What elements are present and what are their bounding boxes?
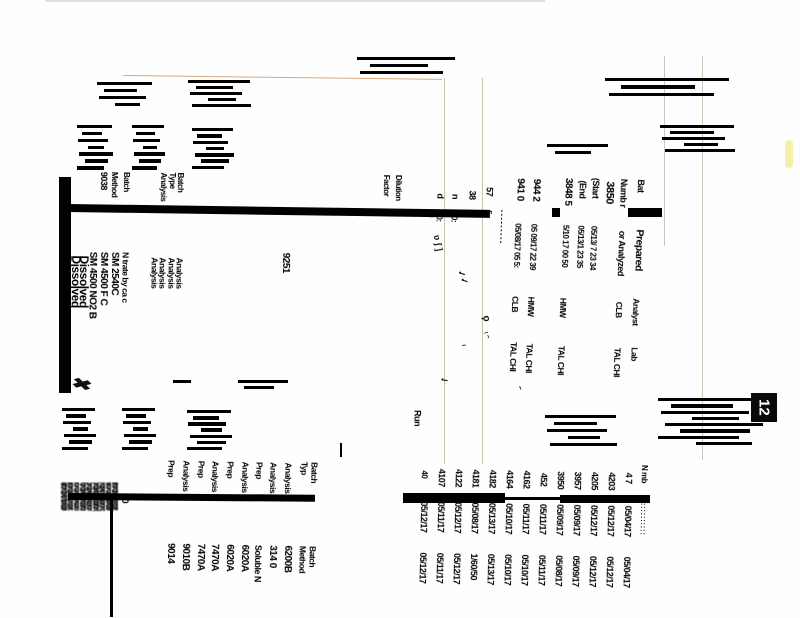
redacted-line [360,71,443,74]
text-fragment: 38 [467,190,476,199]
redacted-line [547,429,607,432]
redacted-line [201,428,221,431]
rotated-table-text: DilutionFactor29251BatchAnalysisTypeAnal… [0,0,800,618]
redacted-blob [187,410,235,453]
pen-mark: ᐟ [458,342,467,351]
redacted-line [69,440,91,443]
text-fragment: TAL CHI [556,346,566,376]
redaction-bar [68,204,490,218]
redacted-blob [547,144,613,157]
redacted-line [208,98,236,101]
redacted-line [197,441,227,444]
redacted-line [88,146,104,149]
redacted-line [621,85,695,88]
redacted-line [187,447,222,450]
redacted-line [545,415,616,418]
redacted-line [206,147,225,150]
text-fragment: Soluble N [253,545,263,582]
scanned-document-page: DilutionFactor29251BatchAnalysisTypeAnal… [0,0,800,618]
text-fragment: 9251 [280,253,290,273]
text-fragment: SM 2540C [109,252,119,295]
redacted-line [190,92,242,95]
text-fragment: 4205 [590,472,599,490]
text-fragment: Batch [176,173,184,193]
redacted-line [115,103,140,106]
text-fragment: CLB [510,296,519,312]
redacted-line [63,421,91,424]
text-fragment: 3957 [573,471,582,489]
text-fragment: 314 0 [267,545,277,568]
text-fragment: Run [412,410,421,426]
text-fragment: 05/12/17 [419,501,429,532]
illegible-row: (||ǀ¦)|ǃ(¦||)ǀ|¦(ǃ||)¦ǀ(|¦(||ǀ [60,482,67,616]
redacted-line [188,80,250,83]
text-fragment: 05/04/17 [623,506,633,537]
text-fragment: Analysis [283,462,292,493]
text-fragment: 05/11/17 [521,503,531,534]
pen-mark: ʋ ʃ ] [432,234,445,252]
redacted-line [173,380,191,383]
redacted-blob [545,415,622,450]
pen-mark: ✖ [69,374,94,396]
pen-mark: ✓✓ [455,269,470,287]
text-fragment: 05/04/17 [621,557,631,588]
redacted-line [665,149,735,152]
redaction-bar [68,493,315,502]
redacted-line [192,104,251,107]
text-fragment: Factor [382,175,390,197]
fold-line [123,75,442,80]
bottom-right-table: N mb: : : : : : : : : :4 705/04/1705/04/… [0,0,800,618]
redaction-bar [560,495,650,503]
redaction-bar [340,443,342,457]
text-fragment: TAL CHI [612,348,622,378]
redacted-line [136,132,155,135]
text-fragment: 7470A [195,544,206,571]
highlight-layer [0,0,800,618]
text-fragment: 4164 [505,470,514,488]
text-fragment: 05/09/17 [555,504,565,535]
redacted-line [671,404,733,407]
text-fragment: Analysis [159,172,167,201]
redacted-line [605,78,729,81]
redacted-blob [173,380,193,389]
fold-line [444,78,445,464]
illegible-row: ¦)|ǃ(¦||)ǀ|¦(ǃ||)¦ǀ(|¦(||ǀ¦)|ǃ [86,482,93,616]
text-fragment: Type [168,172,176,188]
text-fragment: Bat [636,179,645,192]
text-fragment: Analysis [210,461,219,492]
text-fragment: 4182 [488,470,497,488]
pen-mark: ᵎ ᵔ [481,331,491,340]
text-fragment: 05/10/17 [502,554,512,585]
top-right-table: BatPreparedAnalystLabNumb ror AnalyzedCL… [0,0,800,618]
redacted-line [197,134,222,137]
text-fragment: (Start [590,178,600,199]
text-fragment: 05/12/17 [606,505,616,536]
redacted-blob [188,80,255,110]
text-fragment: Prep [197,461,206,478]
fold-line [482,78,483,464]
redacted-line [665,423,764,426]
text-fragment: 5/10 17 00 50 [560,225,569,268]
redacted-line [143,146,158,149]
redacted-line [684,143,718,146]
redaction-bar [552,208,560,217]
redacted-line [357,57,455,60]
text-fragment: 05/11/17 [435,553,445,584]
text-fragment: (End [577,180,587,198]
redacted-line [554,422,596,425]
redacted-line [133,427,148,430]
redaction-bar [59,177,71,393]
redacted-line [79,152,112,155]
text-fragment: 9038 [99,172,108,190]
text-fragment: 6020A [224,544,235,571]
text-fragment: 05/12/17 [587,556,597,587]
text-fragment: Dissolved [70,255,83,307]
redacted-line [134,152,165,155]
page-number: 12 [756,399,773,416]
redacted-line [85,159,109,162]
text-fragment: SM 4500 NO2 B [87,252,98,319]
text-fragment: Analyst [631,298,640,325]
redacted-line [129,440,151,443]
redacted-line [62,408,95,411]
text-fragment: 452 [539,473,548,487]
illegible-row: ǀ¦)|ǃ(¦||)ǀ|¦(ǃ||)¦ǀ(|¦(||ǀ¦)| [79,482,86,616]
text-fragment: 05/08/17 [470,502,480,533]
redacted-blob [132,125,167,173]
text-fragment: TAL CHI [524,343,534,373]
handwriting-marks: ✖ʋ ʃ ]✓✓ϙᵎ ᵔᐟ✓ᐠ [0,0,800,618]
illegible-row: ||ǀ¦)|ǃ(¦||)ǀ|¦(ǃ||)¦ǀ(|¦(||ǀ¦ [66,482,73,616]
redacted-line [64,434,96,437]
text-fragment: 4122 [454,469,463,487]
scan-edge-smudge [45,0,545,2]
illegible-row: )|ǃ(¦||)ǀ|¦(ǃ||)¦ǀ(|¦(||ǀ¦)|ǃ( [92,482,99,616]
redacted-line [77,125,112,128]
redacted-line [190,435,232,438]
text-fragment: Batch [308,546,317,567]
redacted-blob [605,78,740,100]
redacted-line [196,86,233,89]
bottom-left-table: BatchBatchTypMethodAnalysis6200BAnalysis… [0,0,800,618]
redacted-blob [122,408,158,453]
redacted-line [370,64,428,67]
text-fragment: Lab [630,347,639,361]
text-fragment: 4181 [471,469,480,487]
redacted-blob [357,57,463,78]
redacted-line [660,125,734,128]
text-fragment: 05/11/17 [536,555,546,586]
text-fragment: Dissolved [61,255,74,307]
redacted-blob [192,128,237,172]
text-fragment: Analysis [158,257,167,288]
redacted-line [122,447,148,450]
redacted-line [188,422,225,425]
redacted-line [195,153,235,156]
text-fragment: 05/13/17 [485,554,495,585]
pen-mark: ✓ [437,374,450,386]
text-fragment: 40 [420,470,428,478]
redacted-blob [238,380,292,392]
redacted-line [658,398,761,401]
text-fragment: 05/12/17 [604,556,614,587]
redacted-line [193,416,219,419]
redacted-line [132,125,164,128]
text-fragment: 0: [434,215,442,221]
redacted-line [609,93,714,96]
text-fragment: 05/12/17 [418,552,428,583]
redacted-line [192,166,224,169]
text-fragment: Dilution [394,175,402,201]
redacted-line [680,429,749,432]
text-fragment: Analysis [181,460,190,491]
text-fragment: 05/12/17 [452,553,462,584]
text-fragment: Numb r [618,179,628,208]
text-fragment: Prepared [633,229,645,271]
text-fragment: 05/11/17 [538,504,548,535]
redacted-line [193,141,228,144]
text-fragment: Analysis [268,462,277,493]
text-fragment: 2 [366,210,376,215]
fold-line [664,56,665,246]
text-fragment: Analysis [150,257,159,288]
redacted-line [62,447,88,450]
illegible-row: |ǃ(¦||)ǀ|¦(ǃ||)¦ǀ(|¦(||ǀ¦)|ǃ(¦ [98,482,105,616]
text-fragment: 05/13/ 7 23 34 [588,226,598,270]
redacted-line [97,82,152,85]
redacted-line [122,408,155,411]
text-fragment: Dissolved [78,256,91,308]
text-fragment: n [450,194,459,199]
text-fragment: Analysis [175,258,184,289]
text-fragment: 05/10/17 [504,503,514,534]
redacted-line [555,151,591,154]
redaction-bars [0,0,800,618]
illegible-row: ||ǀ¦)|ǃ(¦||)ǀ|¦(ǃ||)¦ǀ(|¦(||ǀ¦ [111,482,118,616]
text-fragment: Prep [226,461,235,478]
text-fragment: 5 [484,210,492,214]
redacted-line [201,159,229,162]
text-fragment: 1/60/50 [469,553,479,580]
text-fragment: Batch [122,172,130,192]
text-fragment: 05/13/1 23 35 [575,225,584,268]
text-fragment: - - - - - - - - - [497,209,506,243]
redacted-blob [97,82,157,110]
redacted-line [77,166,104,169]
redacted-line [82,132,103,135]
text-fragment: 6020A [239,545,250,572]
text-fragment: Method [110,172,118,198]
page-fold-lines [0,0,800,618]
redacted-line [78,139,108,142]
text-fragment: 05/11/17 [436,502,446,533]
text-fragment: 944 2 [530,179,541,202]
text-fragment: 9014 [165,543,175,563]
redacted-line [132,166,157,169]
text-fragment: 6200B [282,545,293,572]
text-fragment: 9010B [180,543,191,570]
text-fragment: Prep [255,462,264,479]
redaction-bar [403,493,505,503]
redacted-blob [660,125,740,155]
text-fragment: N trate by ca c [121,252,130,303]
text-fragment: Analysis [240,462,249,493]
text-fragment: TAL CHI [508,342,518,372]
redacted-line [124,434,156,437]
redacted-text-blobs [0,0,800,618]
text-fragment: 3850 [603,181,615,204]
redacted-blob [77,125,115,173]
text-fragment: 05/12/17 [453,502,463,533]
highlighter-streak [785,140,793,168]
illegible-row: |ǀ¦)|ǃ(¦||)ǀ|¦(ǃ||)¦ǀ(|¦(||ǀ¦) [73,482,80,616]
text-fragment: 05/12/17 [589,505,599,536]
redacted-line [670,131,714,134]
redacted-line [126,414,146,417]
redacted-line [568,436,600,439]
text-fragment: 941 0 [514,178,525,201]
text-fragment: 4107 [437,469,446,487]
redacted-line [238,380,288,383]
illegible-row: (||ǀ¦)|ǃ(¦||)ǀ|¦(ǃ||)¦ǀ(|¦(||ǀ [105,482,112,616]
redacted-line [692,417,739,420]
text-fragment: 5 [467,209,475,213]
redacted-line [133,139,160,142]
text-fragment: HMW [526,297,535,317]
text-fragment: 10 [120,494,129,503]
redaction-bar [110,497,113,617]
redacted-line [104,89,137,92]
text-fragment: Typ [300,462,309,475]
text-fragment: Method [298,546,307,573]
text-fragment: HMW [558,298,567,318]
text-fragment: 05/10/17 [519,554,529,585]
redacted-line [550,443,618,446]
text-fragment: 4203 [607,472,616,490]
redacted-line [696,442,752,445]
text-fragment: 05/08/17 05 5: [512,223,522,268]
pen-mark: ϙ [481,315,492,321]
fold-line [702,56,703,460]
text-fragment: : : : : : : : : : : [639,503,647,534]
redacted-line [139,159,161,162]
text-fragment: 05/13/17 [487,503,497,534]
redaction-bar [628,208,662,217]
text-fragment: 3848 5 [562,178,573,206]
text-fragment: 57 [484,187,493,196]
redacted-line [662,137,724,140]
text-fragment: 05 09/17 22 39 [528,224,538,271]
text-fragment: 05/09/17 [570,555,580,586]
text-fragment: d [435,193,444,198]
redacted-line [66,414,86,417]
text-fragment: SM 4500 F C [98,252,109,306]
redacted-line [658,436,739,439]
top-left-table: DilutionFactor29251BatchAnalysisTypeAnal… [0,0,800,618]
redaction-bar [505,497,561,500]
redacted-line [73,427,88,430]
text-fragment: b [427,212,436,217]
redacted-line [661,411,748,414]
text-fragment: 3950 [556,471,565,489]
text-fragment: 7470A [209,544,220,571]
text-fragment: 05/09/17 [572,504,582,535]
redacted-line [192,128,233,131]
redacted-line [244,386,274,389]
text-fragment: or Analyzed [616,231,627,276]
text-fragment: 0: [449,216,457,222]
text-fragment: N mb [640,465,648,483]
text-fragment: 05/08/17 [553,555,563,586]
text-fragment: 4162 [522,470,531,488]
redacted-line [547,144,608,147]
text-fragment: Analysis [167,257,176,288]
text-fragment: Batch [310,462,319,483]
text-fragment: Prep [167,460,176,477]
text-fragment: CLB [614,302,623,318]
redacted-line [123,421,151,424]
pen-mark: ᐠ [517,385,523,395]
illegible-rows: (||ǀ¦)|ǃ(¦||)ǀ|¦(ǃ||)¦ǀ(|¦(||ǀ||ǀ¦)|ǃ(¦|… [0,0,800,618]
page-number-tab: 12 [751,393,777,422]
redacted-line [99,96,146,99]
redacted-line [187,410,231,413]
text-fragment: 4 7 [624,473,633,484]
redacted-blob [62,408,98,453]
